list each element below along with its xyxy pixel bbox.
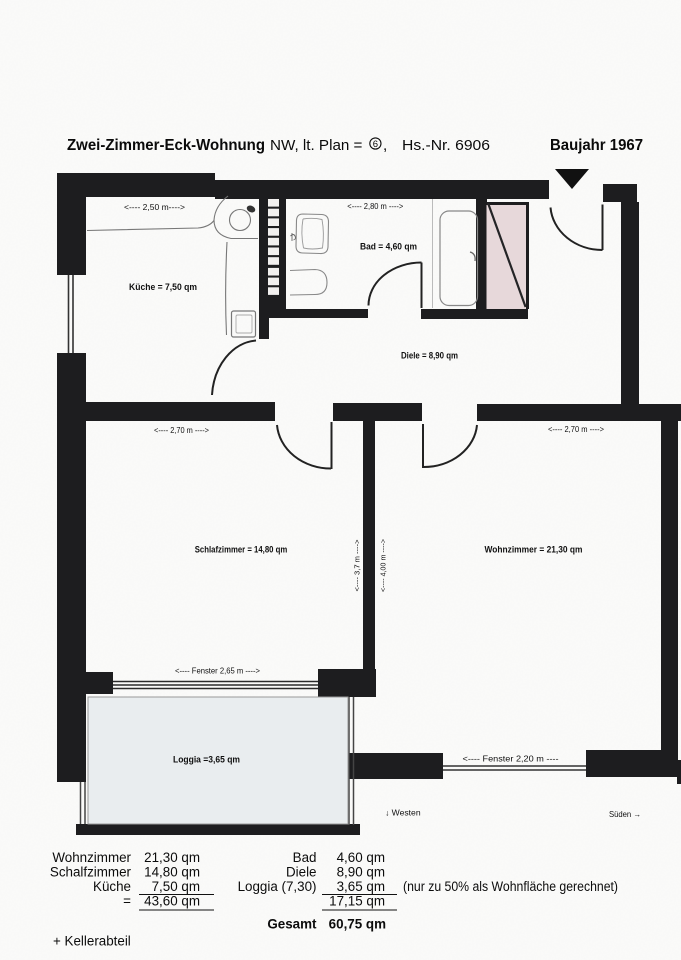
svg-text:Diele = 8,90 qm: Diele = 8,90 qm <box>401 351 458 361</box>
svg-text:Hs.-Nr. 6906: Hs.-Nr. 6906 <box>402 137 490 154</box>
svg-text:Schalfzimmer: Schalfzimmer <box>50 865 132 880</box>
svg-text:<---- 2,70 m ---->: <---- 2,70 m ----> <box>548 425 604 434</box>
svg-text:3,65 qm: 3,65 qm <box>337 879 385 894</box>
svg-text:43,60 qm: 43,60 qm <box>144 894 200 909</box>
svg-text:<---- 2,70 m ---->: <---- 2,70 m ----> <box>154 426 209 435</box>
svg-text:Wohnzimmer: Wohnzimmer <box>52 850 131 865</box>
svg-text:(nur zu 50% als Wohnfläche ger: (nur zu 50% als Wohnfläche gerechnet) <box>403 879 618 894</box>
svg-text:↓ Westen: ↓ Westen <box>385 809 421 818</box>
svg-text:+ Kellerabteil: + Kellerabteil <box>53 934 131 949</box>
svg-text:7,50 qm: 7,50 qm <box>152 879 200 894</box>
svg-text:<---- Fenster 2,65 m ---->: <---- Fenster 2,65 m ----> <box>175 666 260 675</box>
svg-text:Loggia (7,30): Loggia (7,30) <box>238 879 317 894</box>
svg-text:Diele: Diele <box>286 865 317 880</box>
svg-text:NW, lt. Plan =: NW, lt. Plan = <box>270 137 363 154</box>
svg-text:8,90 qm: 8,90 qm <box>337 865 385 880</box>
svg-text:17,15 qm: 17,15 qm <box>329 894 385 909</box>
svg-text:21,30 qm: 21,30 qm <box>144 850 200 865</box>
svg-text:6: 6 <box>373 139 378 150</box>
svg-text:14,80 qm: 14,80 qm <box>144 865 200 880</box>
svg-text:Schlafzimmer = 14,80 qm: Schlafzimmer = 14,80 qm <box>195 544 288 554</box>
svg-text:<---- 4,00 m ---->: <---- 4,00 m ----> <box>381 539 388 592</box>
svg-text:Baujahr 1967: Baujahr 1967 <box>550 137 643 154</box>
svg-text:Gesamt: Gesamt <box>267 917 317 932</box>
svg-text:Wohnzimmer = 21,30 qm: Wohnzimmer = 21,30 qm <box>485 544 583 554</box>
svg-text:=: = <box>123 894 131 909</box>
svg-text:Bad: Bad <box>293 850 317 865</box>
svg-text:Küche = 7,50 qm: Küche = 7,50 qm <box>129 282 197 292</box>
svg-text:<---- 2,50 m---->: <---- 2,50 m----> <box>124 203 185 212</box>
svg-text:Küche: Küche <box>93 879 131 894</box>
svg-text:Zwei-Zimmer-Eck-Wohnung: Zwei-Zimmer-Eck-Wohnung <box>67 137 265 154</box>
svg-text:<---- 2,80 m ---->: <---- 2,80 m ----> <box>347 202 403 211</box>
svg-text:<---- Fenster 2,20 m ----: <---- Fenster 2,20 m ---- <box>463 755 559 764</box>
svg-text:60,75 qm: 60,75 qm <box>329 917 386 932</box>
svg-text:4,60 qm: 4,60 qm <box>337 850 385 865</box>
svg-text:Bad = 4,60 qm: Bad = 4,60 qm <box>360 242 417 252</box>
svg-text:Süden →: Süden → <box>609 810 641 819</box>
svg-text:Loggia =3,65 qm: Loggia =3,65 qm <box>173 755 240 765</box>
svg-text:,: , <box>383 137 387 154</box>
svg-text:<---- 3,7 m ---->: <---- 3,7 m ----> <box>355 540 362 592</box>
